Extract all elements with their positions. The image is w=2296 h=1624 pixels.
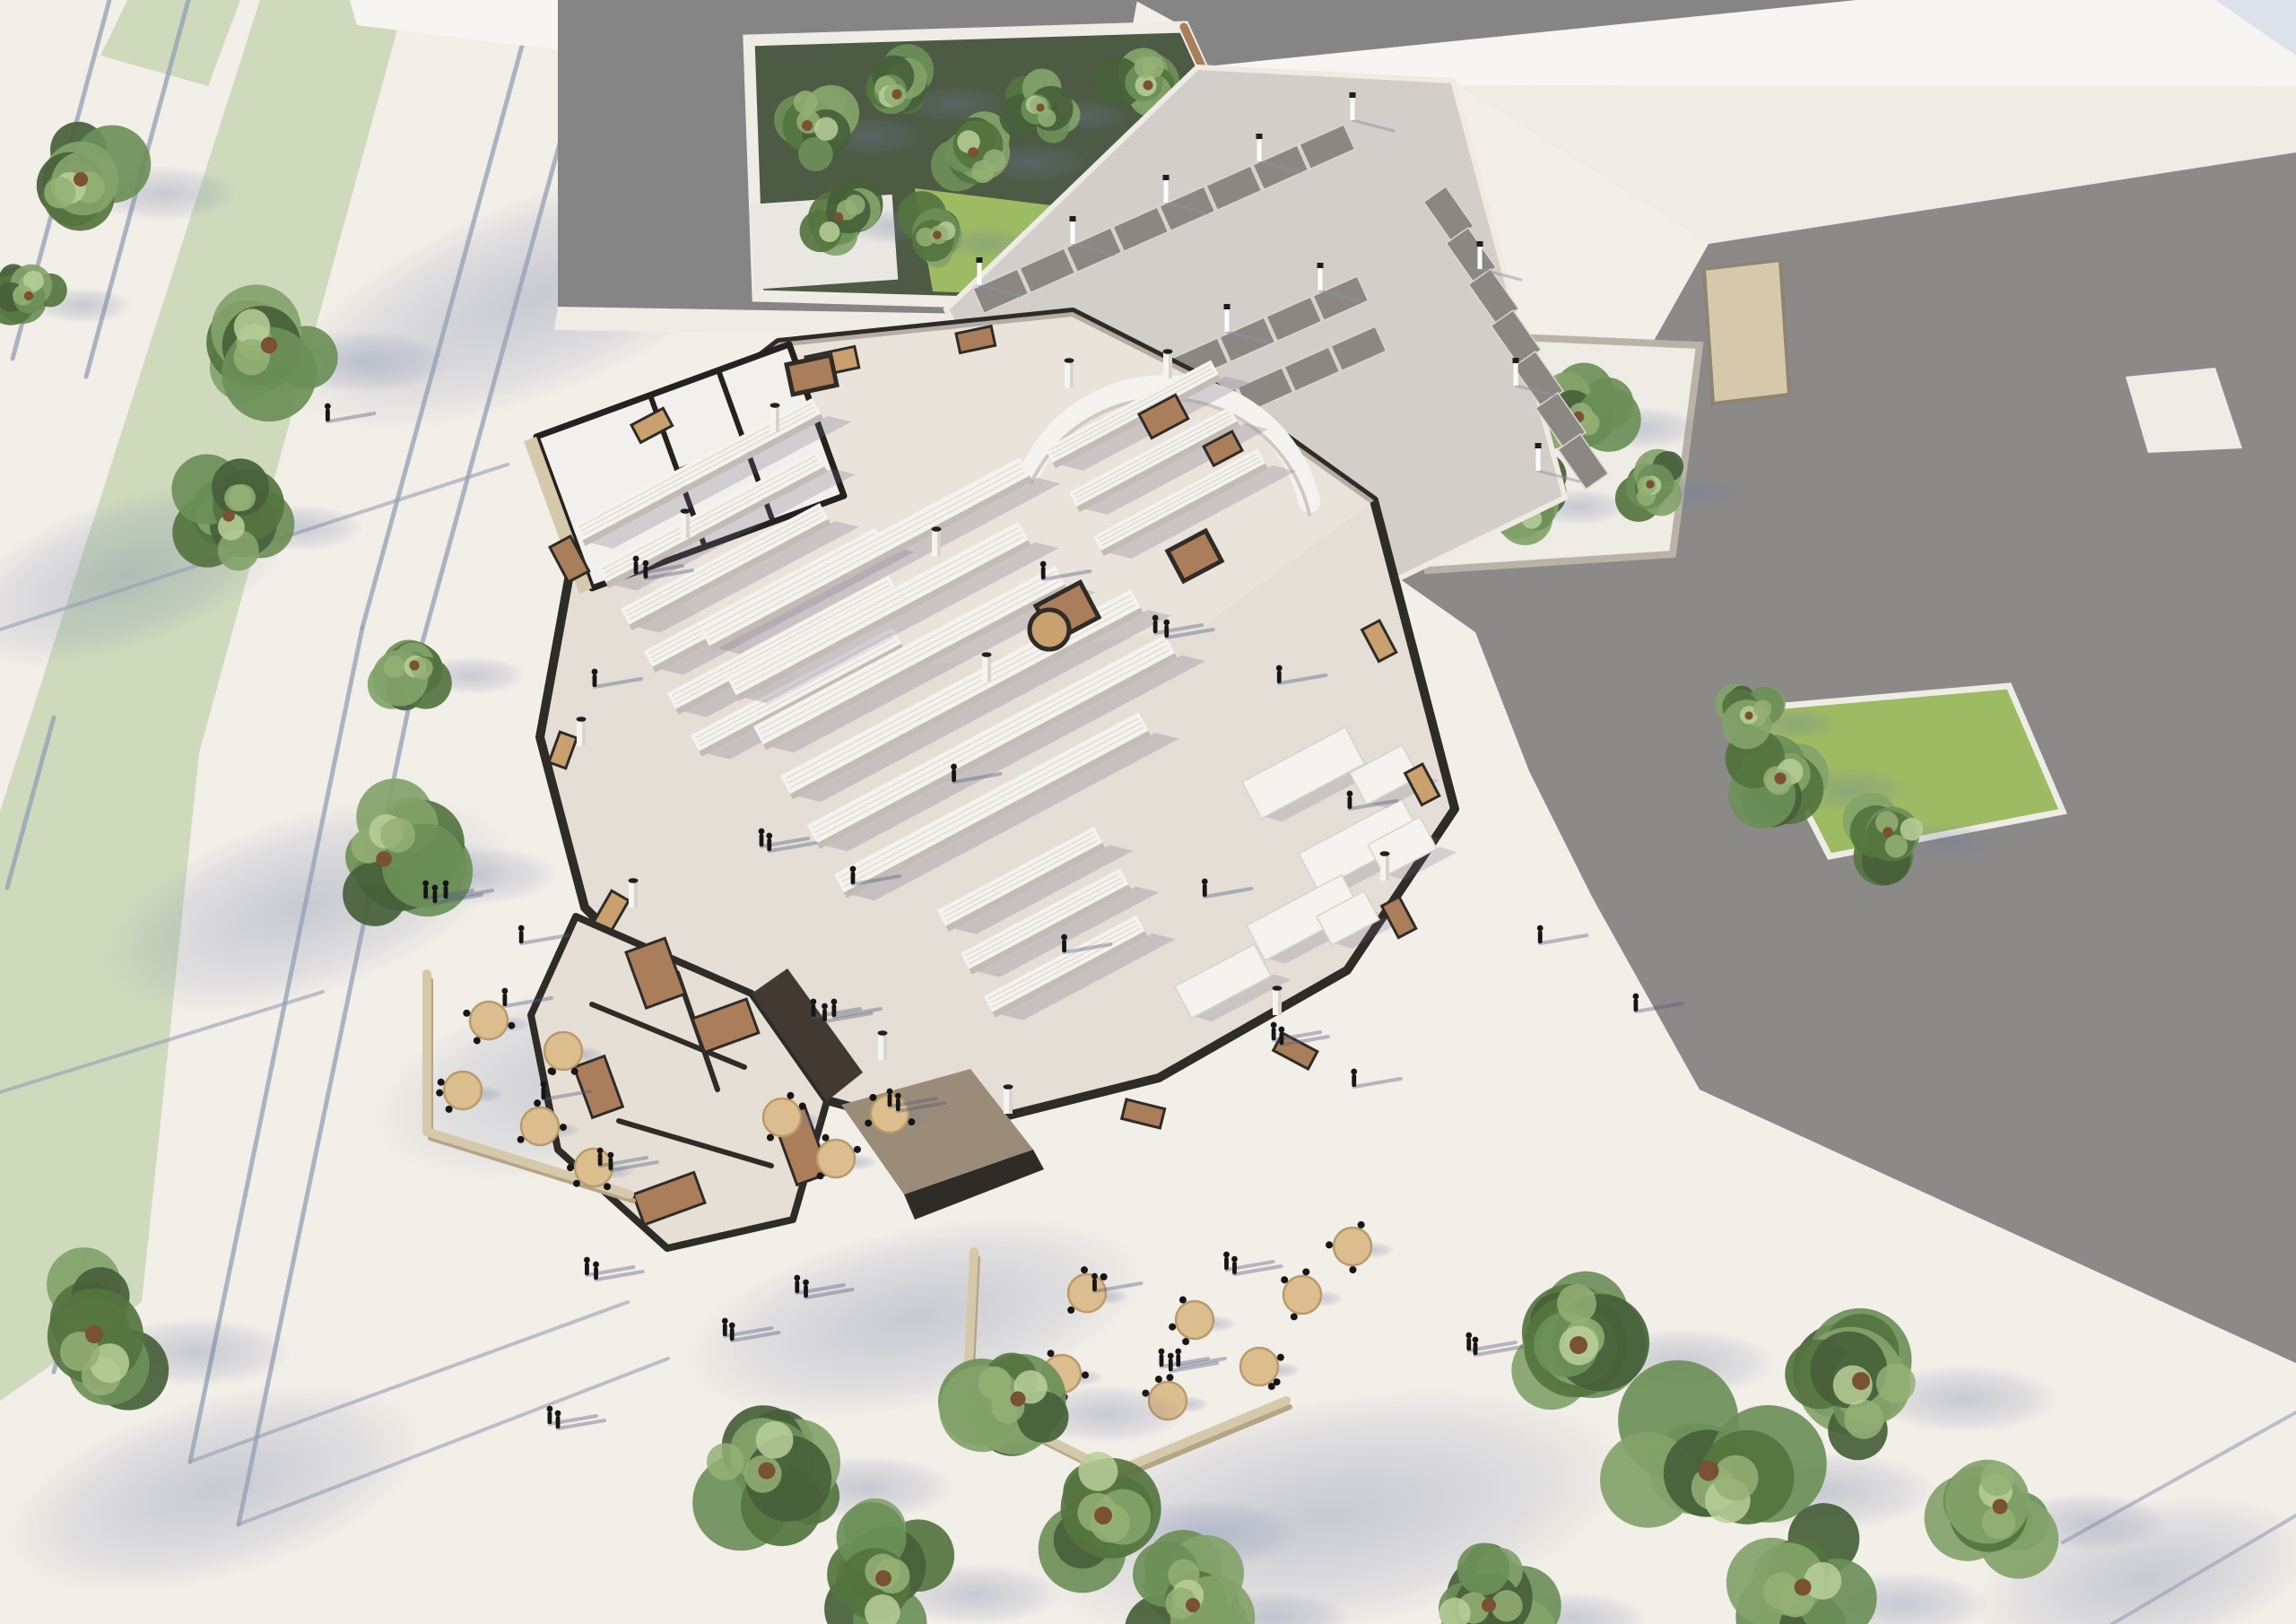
chair — [1100, 1273, 1108, 1281]
person-body — [423, 886, 428, 899]
column — [770, 403, 780, 432]
chair — [1179, 1297, 1187, 1304]
column-cap — [629, 878, 639, 883]
person-body — [795, 1281, 799, 1293]
person-body — [585, 1263, 589, 1275]
column — [982, 652, 992, 682]
column-cap — [982, 652, 992, 657]
table-top — [521, 1107, 559, 1145]
tree-trunk — [1744, 711, 1752, 719]
tree-trunk — [85, 1325, 103, 1343]
tree-highlight — [1078, 1452, 1118, 1491]
person-head — [887, 1089, 893, 1095]
pole-lamp — [1070, 216, 1076, 221]
person-body — [542, 1087, 546, 1099]
chair — [508, 1022, 515, 1029]
column — [681, 508, 691, 538]
chair — [1281, 1276, 1288, 1283]
tree-highlight — [707, 1443, 744, 1481]
chair — [1302, 1268, 1309, 1275]
chair — [1169, 1324, 1176, 1331]
person-body — [1041, 567, 1046, 579]
chair — [1326, 1241, 1333, 1248]
chair — [865, 1119, 872, 1126]
person-head — [1061, 934, 1067, 941]
person-body — [723, 1324, 727, 1336]
person-body — [643, 566, 648, 578]
pole-shaft — [1478, 246, 1483, 269]
person-head — [555, 1411, 561, 1417]
person-head — [895, 1093, 901, 1099]
chair — [548, 1067, 555, 1074]
chair — [1166, 1374, 1173, 1381]
person-body — [502, 994, 507, 1006]
column — [1273, 986, 1283, 1015]
person-head — [325, 404, 331, 410]
column-cap — [1004, 1084, 1013, 1090]
kiosk-body — [787, 355, 837, 395]
tree-trunk — [968, 147, 978, 158]
column — [878, 1030, 888, 1060]
person-body — [952, 769, 956, 782]
column-cap — [1380, 851, 1390, 856]
tree-trunk — [1852, 1372, 1870, 1390]
tree-highlight — [380, 818, 415, 853]
chair — [1067, 1307, 1074, 1314]
person-body — [832, 1004, 837, 1017]
table-top — [817, 1140, 855, 1177]
tree-trunk — [1482, 1598, 1496, 1612]
chair — [767, 1133, 774, 1141]
chair — [908, 1118, 915, 1125]
pole-shaft — [1514, 362, 1518, 386]
person-head — [541, 1081, 547, 1088]
person-head — [1152, 615, 1159, 621]
brick-kiosk — [787, 355, 837, 395]
column-cap — [932, 526, 942, 532]
person-head — [1347, 791, 1353, 797]
person-body — [1092, 1279, 1097, 1291]
tree-highlight — [756, 1421, 794, 1459]
tree-highlight — [383, 656, 405, 678]
person-head — [1473, 1337, 1479, 1343]
person-head — [822, 1003, 828, 1010]
tree-trunk — [933, 230, 942, 239]
chair — [604, 1183, 611, 1190]
column-cap — [681, 508, 691, 514]
person-body — [1203, 884, 1207, 897]
person-body — [433, 890, 438, 903]
chair — [1048, 1350, 1055, 1357]
person-head — [501, 988, 508, 994]
chair — [567, 1164, 574, 1171]
column-cap — [1273, 986, 1283, 991]
person-body — [634, 561, 639, 574]
column — [1004, 1084, 1013, 1114]
chair — [854, 1146, 861, 1153]
tree-trunk — [1646, 480, 1655, 489]
person-head — [1465, 1333, 1472, 1339]
pole-shaft — [978, 262, 982, 285]
person-body — [598, 1153, 603, 1166]
tree-trunk — [891, 89, 901, 99]
tree-trunk — [1036, 103, 1044, 111]
person-head — [850, 866, 857, 873]
tree-highlight — [1900, 818, 1924, 841]
person-head — [1278, 1027, 1284, 1033]
column-cap — [577, 716, 587, 722]
person-body — [730, 1328, 735, 1341]
scene-canvas — [0, 0, 2296, 1624]
rooftop-courtyard — [1704, 260, 1789, 404]
person-head — [766, 833, 772, 839]
tree-trunk — [74, 172, 88, 187]
tree-trunk — [376, 851, 392, 867]
pole-lamp — [1257, 134, 1263, 139]
column-cap — [1163, 349, 1173, 354]
chair — [1268, 1383, 1275, 1390]
tree-trunk — [1774, 772, 1786, 784]
chair — [1082, 1371, 1089, 1378]
column-cap — [1065, 358, 1074, 363]
tree-highlight — [978, 1367, 1011, 1400]
tree-highlight — [814, 117, 838, 140]
person-body — [326, 409, 330, 421]
column-cap — [770, 403, 780, 408]
tree-trunk — [834, 213, 843, 221]
tree-highlight — [1804, 1562, 1841, 1600]
person-body — [1272, 1028, 1276, 1040]
tree-highlight — [971, 161, 995, 184]
person-body — [1224, 1257, 1229, 1270]
chair — [787, 1092, 794, 1099]
person-body — [1160, 1354, 1164, 1367]
chair — [1155, 1376, 1162, 1383]
person-body — [594, 1267, 598, 1280]
tree-trunk — [759, 1463, 776, 1480]
column — [629, 878, 639, 908]
table-top — [763, 1099, 801, 1136]
tree-trunk — [409, 660, 419, 670]
person-body — [1164, 625, 1169, 638]
tree-highlight — [1713, 1455, 1759, 1501]
chair — [1277, 1354, 1284, 1361]
person-head — [443, 881, 449, 887]
person-head — [951, 764, 957, 770]
person-head — [518, 925, 525, 932]
column-shade — [686, 511, 690, 538]
person-head — [1271, 1022, 1277, 1029]
chair — [1358, 1221, 1365, 1229]
person-head — [803, 1280, 809, 1286]
tree-highlight — [1557, 1284, 1596, 1324]
person-body — [767, 838, 771, 851]
tree-trunk — [1993, 1499, 2008, 1515]
pole-shaft — [1536, 447, 1541, 471]
chair — [817, 1172, 824, 1179]
person-head — [794, 1275, 800, 1281]
person-head — [729, 1323, 735, 1329]
person-body — [851, 872, 856, 884]
person-head — [1091, 1273, 1098, 1280]
chair — [463, 1010, 470, 1017]
tree-trunk — [875, 1570, 891, 1586]
pole-lamp — [1535, 443, 1542, 448]
column-shade — [1386, 854, 1389, 881]
tree-highlight — [794, 91, 817, 114]
person-head — [1168, 1353, 1174, 1359]
person-head — [1163, 620, 1170, 626]
column — [932, 526, 942, 556]
chair — [1349, 1266, 1356, 1273]
column — [1163, 349, 1173, 378]
person-head — [1231, 1256, 1238, 1263]
person-head — [1276, 665, 1283, 672]
person-body — [804, 1285, 808, 1298]
person-head — [607, 1152, 613, 1159]
person-head — [1223, 1252, 1230, 1258]
person-head — [1351, 1069, 1357, 1075]
person-body — [1633, 999, 1638, 1012]
person-head — [831, 999, 838, 1005]
tree-highlight — [224, 484, 251, 511]
tree-highlight — [819, 221, 839, 242]
person-head — [722, 1318, 728, 1324]
pole-lamp — [1163, 175, 1170, 180]
tree-trunk — [222, 509, 235, 522]
person-body — [1153, 621, 1158, 633]
column-shade — [937, 529, 941, 556]
pole-lamp — [1224, 304, 1231, 309]
person-head — [592, 669, 598, 675]
column-shade — [987, 655, 991, 682]
table-top — [1334, 1228, 1371, 1265]
chair — [517, 1136, 525, 1143]
table-top — [1240, 1348, 1278, 1385]
pole-shaft — [1225, 308, 1230, 332]
person-body — [822, 1009, 827, 1021]
pole-lamp — [977, 257, 983, 263]
person-head — [593, 1262, 599, 1268]
tree-trunk — [1144, 81, 1153, 91]
person-body — [519, 931, 524, 943]
column — [1380, 851, 1390, 881]
column-shade — [1278, 988, 1282, 1015]
person-body — [1348, 796, 1352, 809]
tree-canopy — [798, 137, 832, 171]
chair — [438, 1079, 445, 1086]
pole-shaft — [1351, 97, 1355, 120]
pole-lamp — [1477, 241, 1483, 247]
tree-trunk — [1699, 1461, 1719, 1481]
table-top — [1283, 1276, 1321, 1314]
column-cap — [878, 1030, 888, 1036]
person-body — [896, 1099, 900, 1111]
person-body — [1062, 940, 1066, 952]
person-body — [1474, 1342, 1478, 1355]
person-body — [760, 834, 764, 847]
pole-shaft — [1071, 221, 1075, 244]
tree-trunk — [1094, 1507, 1112, 1524]
person-body — [1169, 1359, 1173, 1371]
table-top — [444, 1072, 482, 1109]
tree-trunk — [1883, 827, 1893, 838]
column-shade — [776, 405, 779, 432]
pole-lamp — [1318, 263, 1324, 268]
column-shade — [582, 719, 586, 746]
tree-trunk — [802, 120, 813, 131]
pole-shaft — [1318, 267, 1323, 291]
person-head — [1159, 1349, 1165, 1355]
person-body — [1176, 1354, 1180, 1367]
person-head — [1537, 925, 1544, 932]
person-head — [597, 1148, 604, 1154]
tree-highlight — [1884, 835, 1908, 858]
tree-highlight — [1763, 1572, 1801, 1610]
person-body — [812, 1004, 816, 1017]
tree-highlight — [1980, 1463, 2013, 1496]
person-body — [608, 1158, 613, 1170]
person-head — [422, 881, 429, 887]
tree-highlight — [1753, 699, 1771, 717]
chair — [573, 1180, 580, 1187]
column-shade — [1009, 1087, 1013, 1114]
person-head — [811, 999, 817, 1005]
person-body — [593, 674, 597, 687]
tree-trunk — [24, 291, 33, 300]
table-top — [1068, 1274, 1106, 1312]
person-head — [633, 556, 639, 562]
person-body — [1538, 931, 1543, 943]
tree-trunk — [1570, 1336, 1587, 1354]
architectural-rendering: Aerial axonometric rendering — market ha… — [0, 0, 2296, 1624]
person-head — [642, 560, 648, 567]
person-head — [432, 885, 439, 891]
column — [1065, 358, 1074, 387]
column — [577, 716, 587, 746]
tree-highlight — [1135, 56, 1156, 78]
person-body — [444, 886, 448, 899]
table-top — [575, 1149, 613, 1186]
pole-shaft — [1257, 138, 1262, 161]
table-top — [1176, 1301, 1213, 1339]
person-body — [1232, 1262, 1237, 1274]
tree-trunk — [1186, 1598, 1200, 1612]
tree-canopy — [1457, 1543, 1509, 1595]
person-body — [556, 1416, 561, 1429]
person-head — [547, 1406, 553, 1412]
chair — [474, 1037, 481, 1044]
chair — [446, 1106, 453, 1113]
chair — [436, 1090, 443, 1097]
chair — [560, 1124, 567, 1131]
pole-lamp — [1350, 92, 1356, 98]
person-body — [1352, 1074, 1356, 1087]
person-head — [1632, 994, 1639, 1000]
person-body — [1277, 671, 1282, 683]
chair — [822, 1134, 830, 1142]
person-body — [1279, 1032, 1283, 1045]
person-body — [548, 1411, 552, 1424]
person-head — [1040, 561, 1047, 568]
person-head — [759, 829, 765, 835]
column-shade — [1070, 360, 1074, 387]
tree-highlight — [1876, 1363, 1916, 1403]
table-top — [470, 1002, 508, 1039]
person-head — [1202, 879, 1208, 885]
chair — [534, 1099, 541, 1107]
chair — [571, 1068, 578, 1075]
chair — [1081, 1266, 1088, 1273]
column-shade — [1169, 352, 1172, 378]
chair — [1182, 1338, 1189, 1345]
chair — [1291, 1313, 1298, 1320]
tree-highlight — [845, 195, 865, 215]
person-head — [1175, 1349, 1181, 1355]
chair — [799, 1102, 806, 1109]
table-top — [544, 1032, 582, 1070]
tree-trunk — [1795, 1579, 1812, 1596]
person-body — [888, 1094, 892, 1107]
person-body — [1466, 1338, 1471, 1350]
tree-trunk — [261, 337, 277, 353]
tree-highlight — [1844, 1400, 1883, 1439]
pole-shaft — [1164, 179, 1169, 203]
kiosk-round-tower — [1030, 610, 1069, 649]
column-shade — [883, 1033, 887, 1060]
person-head — [584, 1257, 590, 1264]
column-shade — [634, 881, 638, 908]
tree-highlight — [44, 177, 75, 208]
chair — [869, 1094, 876, 1101]
tree-trunk — [1011, 1392, 1026, 1407]
pole-lamp — [1513, 358, 1519, 363]
